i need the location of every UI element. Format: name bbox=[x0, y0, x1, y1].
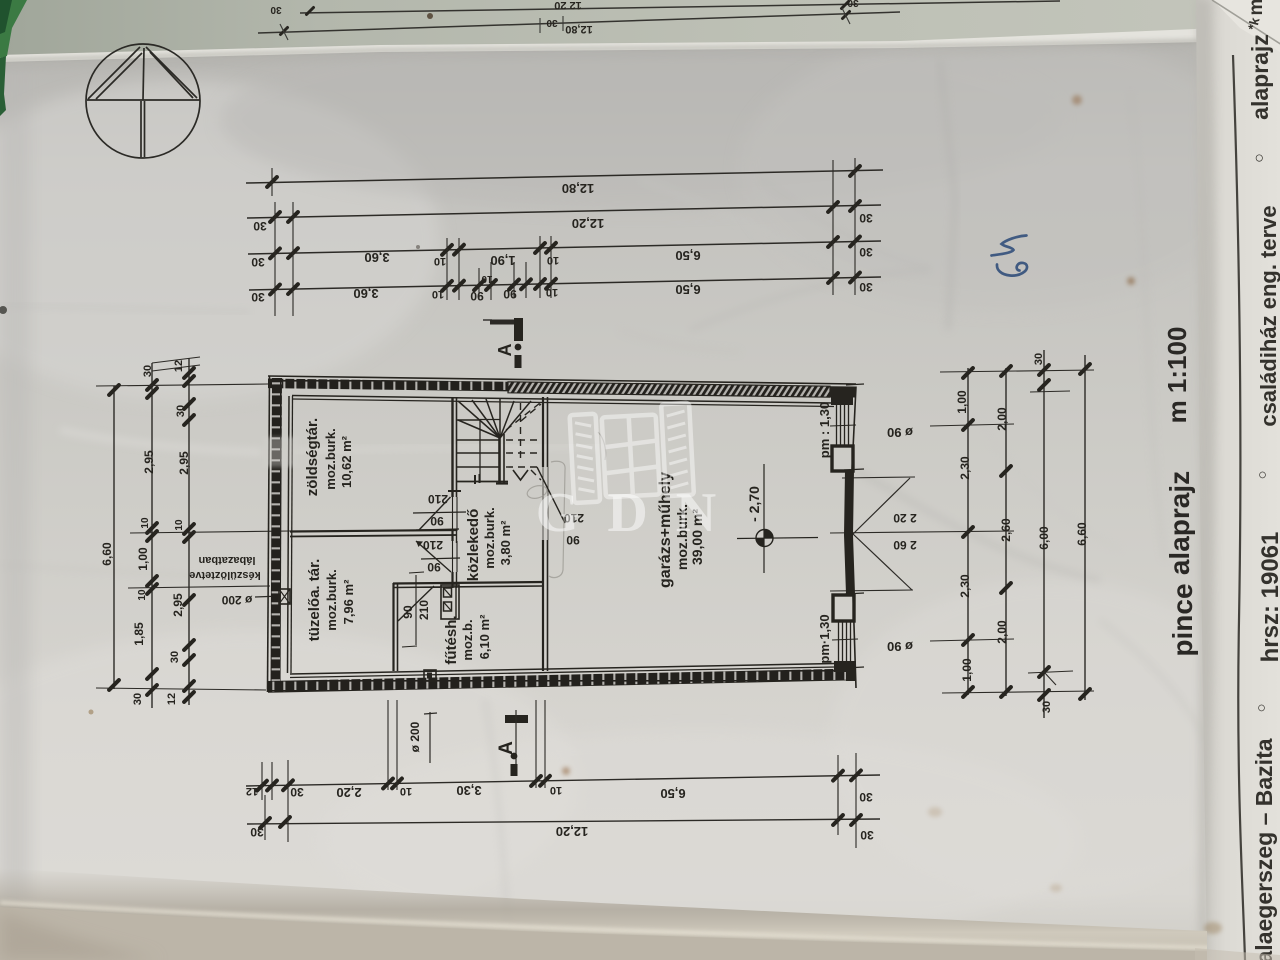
svg-text:90: 90 bbox=[401, 605, 415, 619]
svg-text:30: 30 bbox=[251, 290, 265, 304]
svg-text:30: 30 bbox=[859, 211, 873, 225]
svg-text:10: 10 bbox=[432, 288, 444, 300]
svg-text:1,00: 1,00 bbox=[960, 658, 974, 682]
svg-text:10,62 m²: 10,62 m² bbox=[339, 435, 354, 488]
svg-text:fűtésh.: fűtésh. bbox=[443, 615, 460, 664]
svg-text:30: 30 bbox=[546, 17, 558, 28]
svg-text:2,20: 2,20 bbox=[336, 785, 361, 800]
svg-text:alaprajz: alaprajz bbox=[1247, 34, 1273, 120]
svg-text:30: 30 bbox=[860, 828, 874, 842]
svg-text:pm·1,30: pm·1,30 bbox=[817, 614, 832, 663]
svg-text:90: 90 bbox=[427, 560, 441, 574]
svg-text:30: 30 bbox=[132, 693, 144, 705]
svg-text:12,20: 12,20 bbox=[556, 824, 589, 839]
svg-text:lábazatban: lábazatban bbox=[198, 554, 255, 566]
svg-text:6,50: 6,50 bbox=[660, 786, 685, 801]
svg-text:12: 12 bbox=[246, 785, 258, 797]
svg-text:pince: pince bbox=[1167, 583, 1198, 656]
svg-text:moz.b.: moz.b. bbox=[460, 619, 475, 660]
svg-text:30: 30 bbox=[859, 245, 873, 259]
svg-text:90: 90 bbox=[470, 289, 484, 303]
svg-text:90: 90 bbox=[430, 514, 444, 528]
svg-text:1,85: 1,85 bbox=[132, 622, 146, 646]
svg-text:moz.burk.: moz.burk. bbox=[324, 569, 339, 630]
svg-text:2,00: 2,00 bbox=[995, 620, 1009, 644]
svg-text:A: A bbox=[495, 344, 515, 357]
svg-text:30: 30 bbox=[251, 255, 265, 269]
svg-text:m 1:100: m 1:100 bbox=[1162, 327, 1192, 424]
svg-text:6,00: 6,00 bbox=[1037, 526, 1051, 550]
svg-text:m: m bbox=[1246, 0, 1267, 15]
svg-text:2,95: 2,95 bbox=[142, 450, 156, 474]
svg-text:210: 210 bbox=[417, 600, 431, 620]
svg-text:210: 210 bbox=[423, 538, 443, 552]
svg-text:12,80: 12,80 bbox=[565, 23, 593, 35]
svg-text:közlekedő: közlekedő bbox=[465, 509, 482, 582]
svg-text:pm : 1,30: pm : 1,30 bbox=[817, 402, 832, 458]
svg-text:30: 30 bbox=[290, 785, 304, 799]
svg-text:10: 10 bbox=[550, 784, 562, 796]
svg-text:2,30: 2,30 bbox=[958, 574, 972, 598]
svg-text:moz.burk.: moz.burk. bbox=[323, 428, 338, 489]
svg-text:2,30: 2,30 bbox=[958, 456, 972, 480]
svg-text:2,95: 2,95 bbox=[171, 593, 185, 617]
svg-text:1,00: 1,00 bbox=[136, 547, 150, 571]
svg-text:ø 90: ø 90 bbox=[887, 425, 913, 440]
svg-text:családiház eng. terve: családiház eng. terve bbox=[1256, 205, 1280, 426]
svg-text:hrsz: 19061: hrsz: 19061 bbox=[1257, 532, 1280, 663]
svg-text:30: 30 bbox=[253, 219, 267, 233]
svg-text:2 20: 2 20 bbox=[893, 511, 917, 525]
svg-text:2 60: 2 60 bbox=[893, 538, 917, 552]
svg-text:10: 10 bbox=[140, 517, 151, 529]
svg-text:30: 30 bbox=[847, 0, 859, 8]
svg-text:- 2,70: - 2,70 bbox=[746, 486, 762, 522]
svg-text:1,90: 1,90 bbox=[490, 253, 515, 268]
svg-text:2,60: 2,60 bbox=[999, 518, 1013, 542]
svg-text:Zalaegerszeg – Bazita: Zalaegerszeg – Bazita bbox=[1251, 738, 1277, 960]
svg-text:alaprajz: alaprajz bbox=[1164, 471, 1195, 575]
svg-text:90: 90 bbox=[503, 287, 517, 301]
svg-text:30: 30 bbox=[250, 825, 264, 839]
svg-text:12,80: 12,80 bbox=[562, 181, 595, 196]
svg-text:10: 10 bbox=[400, 785, 412, 797]
svg-text:12: 12 bbox=[173, 360, 185, 372]
svg-text:30: 30 bbox=[1041, 701, 1053, 713]
svg-text:10: 10 bbox=[174, 519, 185, 531]
svg-text:6,10 m²: 6,10 m² bbox=[477, 614, 492, 659]
svg-text:12 20: 12 20 bbox=[554, 0, 582, 11]
svg-text:moz.burk.: moz.burk. bbox=[482, 507, 497, 568]
svg-text:2,95: 2,95 bbox=[177, 451, 191, 475]
svg-text:6,60: 6,60 bbox=[1075, 522, 1089, 546]
svg-text:10: 10 bbox=[546, 286, 558, 298]
svg-text:2,00: 2,00 bbox=[995, 407, 1009, 431]
svg-text:tüzelőa. tár.: tüzelőa. tár. bbox=[306, 559, 323, 642]
svg-text:30: 30 bbox=[859, 280, 873, 294]
svg-text:3,30: 3,30 bbox=[456, 783, 481, 798]
svg-text:○: ○ bbox=[1254, 470, 1271, 479]
svg-text:10: 10 bbox=[434, 255, 446, 267]
svg-text:210: 210 bbox=[428, 492, 448, 506]
svg-text:6,50: 6,50 bbox=[675, 248, 700, 263]
svg-text:30: 30 bbox=[859, 790, 873, 804]
svg-text:3,80 m²: 3,80 m² bbox=[498, 520, 513, 565]
svg-text:GDN: GDN bbox=[536, 482, 744, 544]
svg-text:30: 30 bbox=[270, 4, 282, 15]
svg-text:ø 200: ø 200 bbox=[408, 721, 422, 752]
svg-text:készülöztetve: készülöztetve bbox=[189, 569, 261, 581]
svg-text:3,60: 3,60 bbox=[364, 250, 389, 265]
svg-text:zöldségtár.: zöldségtár. bbox=[304, 418, 321, 496]
svg-text:ø 90: ø 90 bbox=[887, 639, 913, 654]
svg-text:○: ○ bbox=[1251, 153, 1268, 163]
svg-text:1,00: 1,00 bbox=[955, 390, 969, 414]
svg-text:12,20: 12,20 bbox=[572, 216, 605, 231]
svg-text:30: 30 bbox=[175, 405, 187, 417]
svg-text:7,96 m²: 7,96 m² bbox=[341, 579, 356, 624]
svg-text:3,60: 3,60 bbox=[353, 286, 378, 301]
svg-text:A: A bbox=[496, 741, 517, 755]
svg-text:○: ○ bbox=[1253, 703, 1270, 712]
svg-text:ø 200: ø 200 bbox=[221, 593, 252, 607]
svg-text:6,60: 6,60 bbox=[100, 542, 114, 566]
svg-text:12: 12 bbox=[166, 693, 178, 705]
svg-text:10: 10 bbox=[547, 254, 559, 266]
svg-text:30: 30 bbox=[169, 651, 181, 663]
svg-text:6,50: 6,50 bbox=[675, 282, 700, 297]
svg-text:10: 10 bbox=[137, 589, 148, 601]
svg-text:30: 30 bbox=[1033, 353, 1045, 365]
